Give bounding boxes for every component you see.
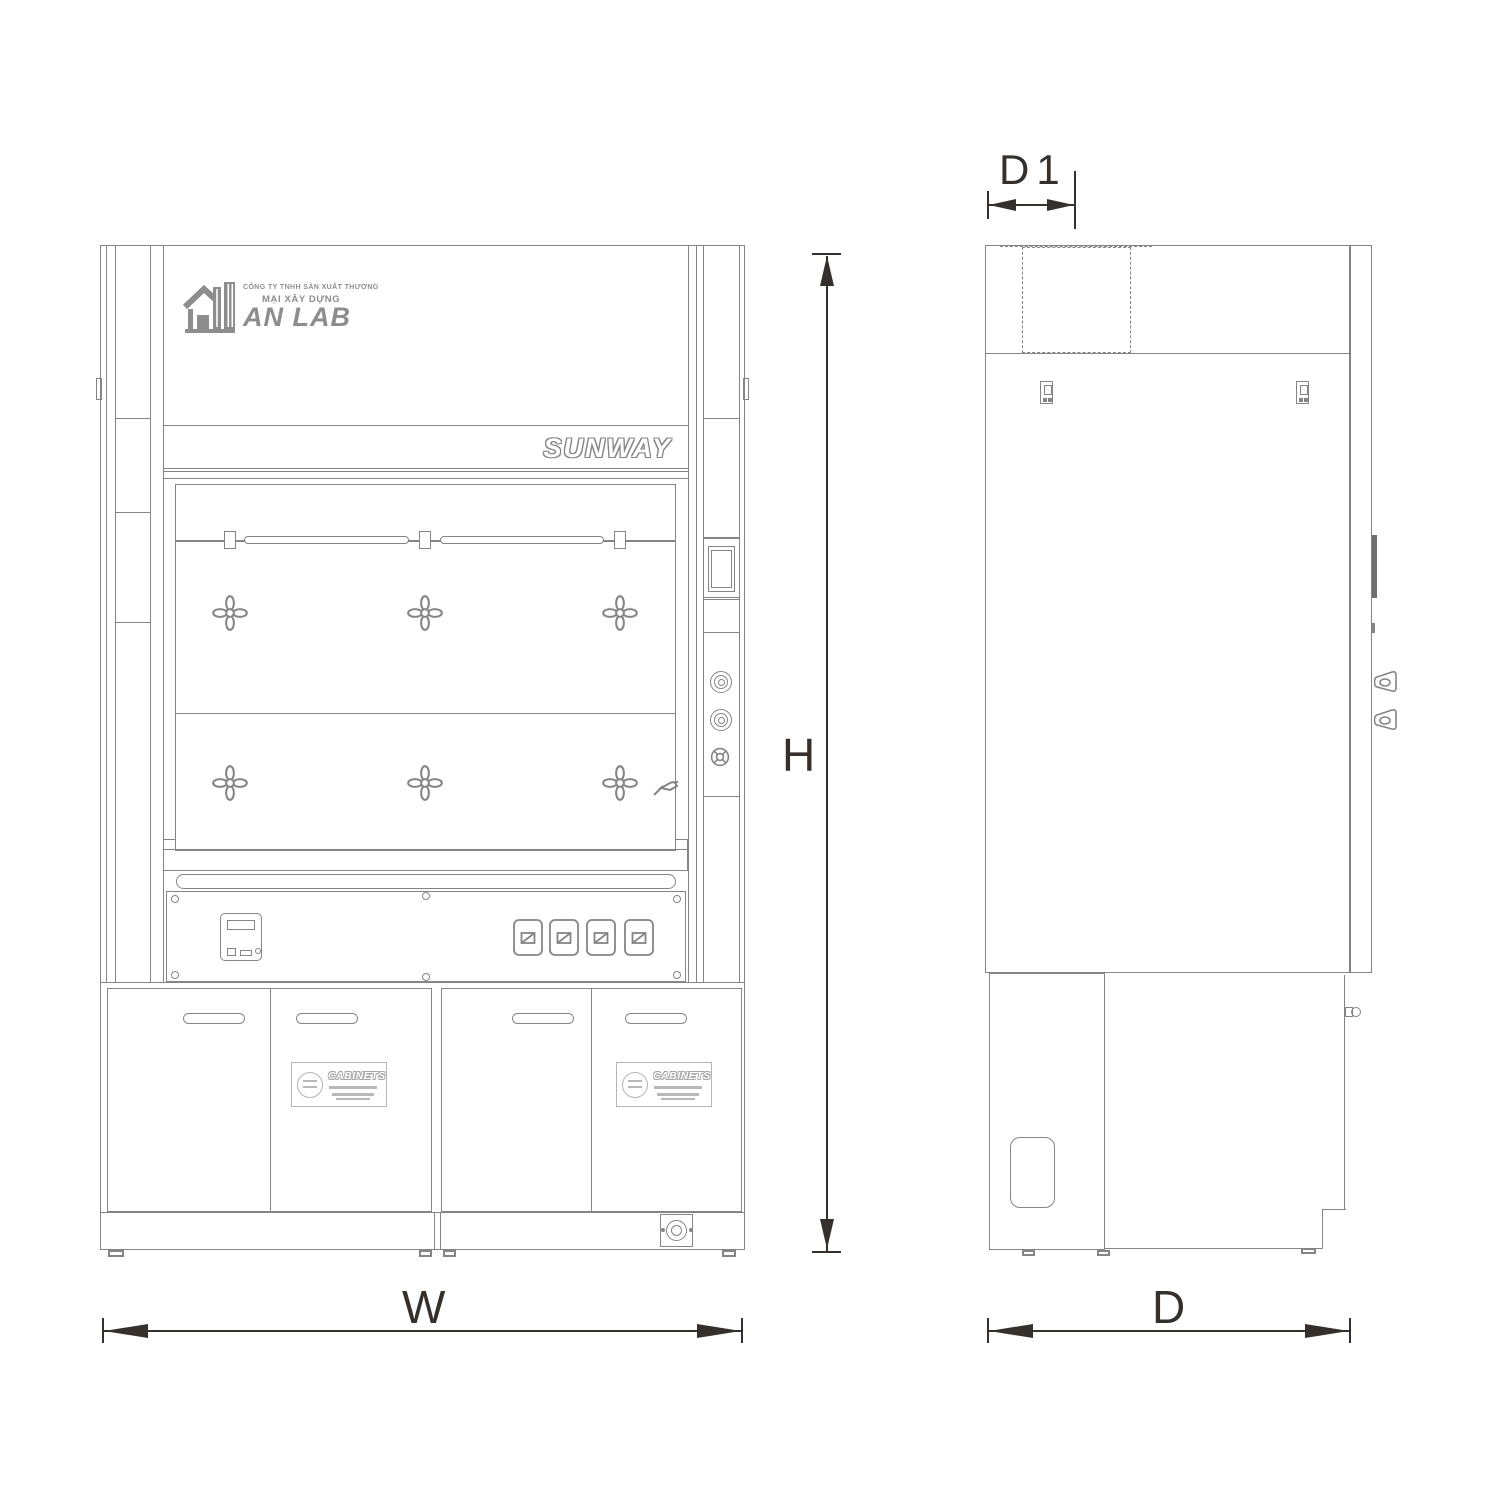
hinge-bracket-icon xyxy=(1040,381,1053,404)
exhaust-duct-dashed-outline xyxy=(1022,247,1131,353)
sash-rod-connector xyxy=(419,531,431,549)
plinth-top-line xyxy=(100,1212,745,1213)
side-under-step-h xyxy=(1322,1209,1346,1210)
glass-panel-divider xyxy=(175,713,676,714)
left-pillar-line xyxy=(106,245,107,982)
right-pillar-divider xyxy=(703,796,739,797)
door-handle xyxy=(183,1013,245,1024)
rocker-switch-icon xyxy=(549,919,579,956)
brand-plate: SUNWAY xyxy=(480,429,672,467)
left-pillar-divider xyxy=(115,512,150,513)
header-band-line xyxy=(163,425,688,426)
dim-tick xyxy=(812,1251,841,1253)
right-pillar-divider xyxy=(703,418,739,419)
dim-line-h xyxy=(826,256,828,1251)
rear-slot-mark xyxy=(1372,623,1375,633)
right-pillar-line xyxy=(688,245,689,982)
side-knob-tip xyxy=(1351,1007,1361,1017)
cabinets-label-emblem-icon xyxy=(297,1072,323,1098)
valve-handle-icon xyxy=(601,764,639,802)
valve-handle-icon xyxy=(406,594,444,632)
rocker-switch-icon xyxy=(624,919,654,956)
dim-arrow-left xyxy=(989,1324,1033,1338)
side-vent-panel xyxy=(1010,1137,1055,1208)
left-pillar-divider xyxy=(115,622,150,623)
hinge-bracket-icon xyxy=(1296,381,1309,404)
header-band-line xyxy=(163,468,688,469)
dim-arrow-right xyxy=(1305,1324,1349,1338)
side-latch-handle-icon xyxy=(1374,670,1398,695)
dim-label-depth: D xyxy=(1152,1280,1187,1334)
dim-label-width: W xyxy=(402,1280,447,1334)
dim-label-height: H xyxy=(782,728,817,782)
screw-icon xyxy=(171,895,179,903)
left-pillar-divider xyxy=(115,418,150,419)
control-knob-ring xyxy=(718,679,725,686)
right-pillar-line xyxy=(739,245,740,982)
door-handle xyxy=(625,1013,687,1024)
cabinets-label-emblem-icon xyxy=(622,1072,648,1098)
worktop-spill-tray xyxy=(176,874,676,889)
cabinets-label: CABINETS xyxy=(616,1062,712,1107)
sash-rod-sleeve xyxy=(244,536,409,544)
leveling-foot xyxy=(419,1250,432,1257)
right-pillar-divider xyxy=(703,632,739,633)
dim-arrow-left xyxy=(989,199,1016,211)
gas-valve-icon xyxy=(710,747,730,767)
rocker-switch-icon xyxy=(513,919,543,956)
sash-rod-sleeve xyxy=(440,536,604,544)
valve-handle-icon xyxy=(211,764,249,802)
control-knob-ring xyxy=(718,717,725,724)
sash-rod-connector xyxy=(224,531,236,549)
dim-arrow-up xyxy=(820,256,834,286)
cabinets-label-title: CABINETS xyxy=(653,1070,711,1082)
dim-arrow-right xyxy=(697,1324,741,1338)
left-pillar-line xyxy=(150,245,151,982)
dim-arrow-down xyxy=(820,1219,834,1249)
leveling-foot xyxy=(1097,1250,1110,1256)
side-pedestal xyxy=(989,973,1105,1250)
cabinets-label: CABINETS xyxy=(291,1062,387,1107)
display-panel-screen xyxy=(711,550,732,588)
cabinets-label-title: CABINETS xyxy=(328,1070,386,1082)
door-handle xyxy=(512,1013,574,1024)
screw-icon xyxy=(422,892,430,900)
plinth-divider xyxy=(434,1212,435,1250)
dim-arrow-right xyxy=(1047,199,1074,211)
logo-brand-text: AN LAB xyxy=(243,302,351,333)
side-under-bottom xyxy=(1104,1248,1323,1249)
dim-tick xyxy=(1074,171,1076,229)
dim-arrow-left xyxy=(104,1324,148,1338)
cabinet-door-divider xyxy=(270,988,271,1212)
leveling-foot xyxy=(1022,1250,1035,1256)
left-pillar-line xyxy=(115,245,116,982)
door-handle xyxy=(296,1013,358,1024)
screw-icon xyxy=(422,973,430,981)
rear-slot xyxy=(1372,535,1377,598)
leveling-foot xyxy=(443,1250,456,1257)
sash-rail-lug xyxy=(675,839,688,850)
dim-label-top-depth: D1 xyxy=(999,146,1067,194)
dim-tick xyxy=(812,253,841,255)
screw-icon xyxy=(673,895,681,903)
right-pillar-line xyxy=(703,245,704,982)
screw-icon xyxy=(673,971,681,979)
leveling-foot xyxy=(108,1250,124,1257)
right-pillar-divider xyxy=(703,599,739,600)
sash-rod-connector xyxy=(614,531,626,549)
leveling-foot xyxy=(722,1250,736,1257)
faucet-icon xyxy=(648,768,680,800)
sash-rail-lug xyxy=(163,839,176,850)
cabinet-door-divider xyxy=(591,988,592,1212)
header-band-line xyxy=(163,478,688,479)
right-side-tab xyxy=(743,378,749,400)
screw-icon xyxy=(171,971,179,979)
right-pillar-line xyxy=(696,245,697,982)
sash-bottom-rail xyxy=(163,849,688,871)
fume-hood-technical-drawing: CÔNG TY TNHH SẢN XUẤT THƯƠNG MẠI XÂY DỰN… xyxy=(0,0,1500,1500)
anlab-building-logo-icon xyxy=(183,278,241,334)
logo-company-line1: CÔNG TY TNHH SẢN XUẤT THƯƠNG xyxy=(243,284,379,291)
side-rear-strip xyxy=(1350,245,1372,973)
left-pillar-line xyxy=(163,245,164,982)
valve-handle-icon xyxy=(211,594,249,632)
header-band-line xyxy=(163,471,688,472)
rocker-switch-icon xyxy=(586,919,616,956)
plinth-divider xyxy=(440,1212,441,1250)
valve-handle-icon xyxy=(601,594,639,632)
leveling-foot xyxy=(1301,1248,1316,1254)
side-top-divider xyxy=(985,353,1350,354)
side-latch-handle-icon xyxy=(1374,708,1398,733)
side-body xyxy=(985,245,1350,973)
left-side-tab xyxy=(96,378,102,400)
worktop-base-line xyxy=(100,982,745,983)
side-under-step-v xyxy=(1322,1209,1323,1248)
valve-handle-icon xyxy=(406,764,444,802)
